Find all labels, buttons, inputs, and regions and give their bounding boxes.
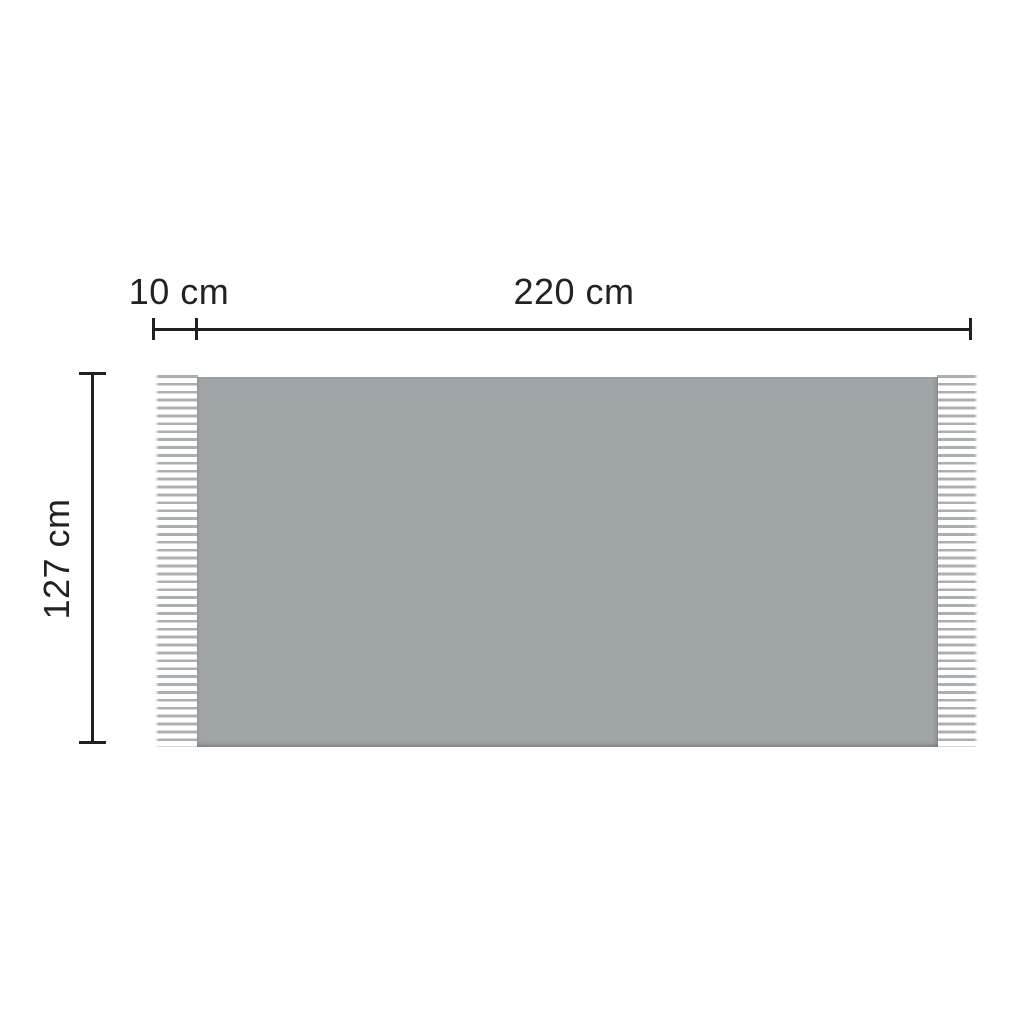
height-label: 127 cm (36, 498, 78, 619)
height-dimension-tick-bottom (79, 741, 106, 744)
height-dimension-tick-top (79, 372, 106, 375)
width-dimension-line (152, 328, 972, 331)
blanket-right-fringe (937, 375, 978, 747)
width-dimension-tick-fringe (195, 318, 198, 340)
height-dimension-line (91, 373, 94, 744)
width-dimension-tick-right (969, 318, 972, 340)
fringe-width-label: 10 cm (129, 271, 230, 313)
width-dimension-tick-left (152, 318, 155, 340)
blanket-dimension-diagram: 10 cm 220 cm 127 cm (0, 0, 1024, 1024)
body-width-label: 220 cm (513, 271, 634, 313)
blanket-left-fringe (155, 375, 198, 747)
blanket-body (197, 377, 938, 747)
